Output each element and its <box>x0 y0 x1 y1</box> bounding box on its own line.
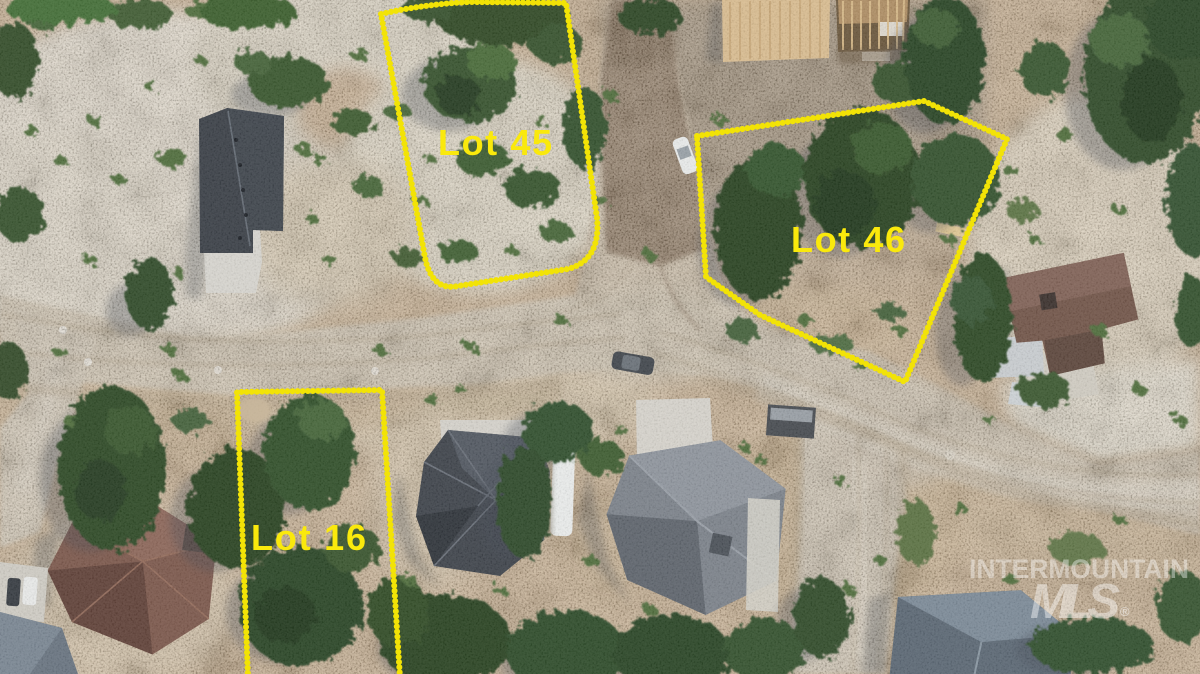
svg-text:Lot 46: Lot 46 <box>791 219 905 260</box>
svg-text:Lot 45: Lot 45 <box>438 122 552 163</box>
svg-text:®: ® <box>1120 604 1130 619</box>
svg-text:Lot 16: Lot 16 <box>251 517 366 558</box>
svg-text:MLS: MLS <box>1030 575 1120 629</box>
